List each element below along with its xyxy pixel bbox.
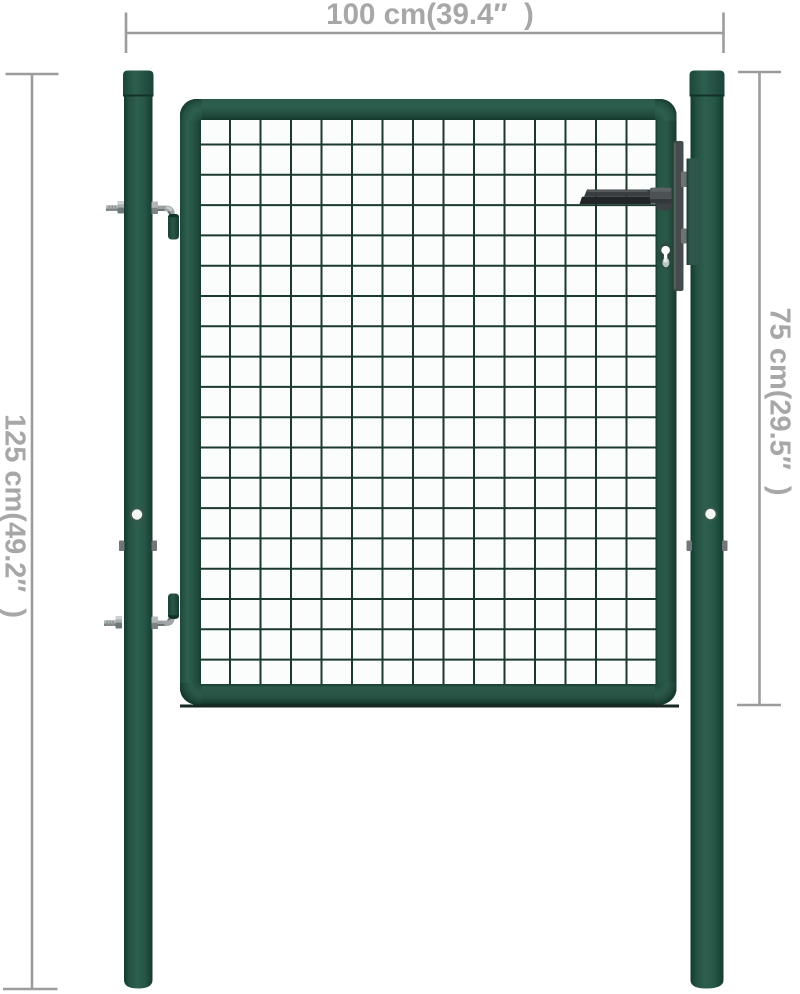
svg-text:125 cm(49.2″ ): 125 cm(49.2″ ): [0, 414, 31, 618]
svg-text:100 cm(39.4″ ): 100 cm(39.4″ ): [326, 0, 534, 31]
svg-text:75 cm(29.5″ ): 75 cm(29.5″ ): [764, 308, 796, 496]
